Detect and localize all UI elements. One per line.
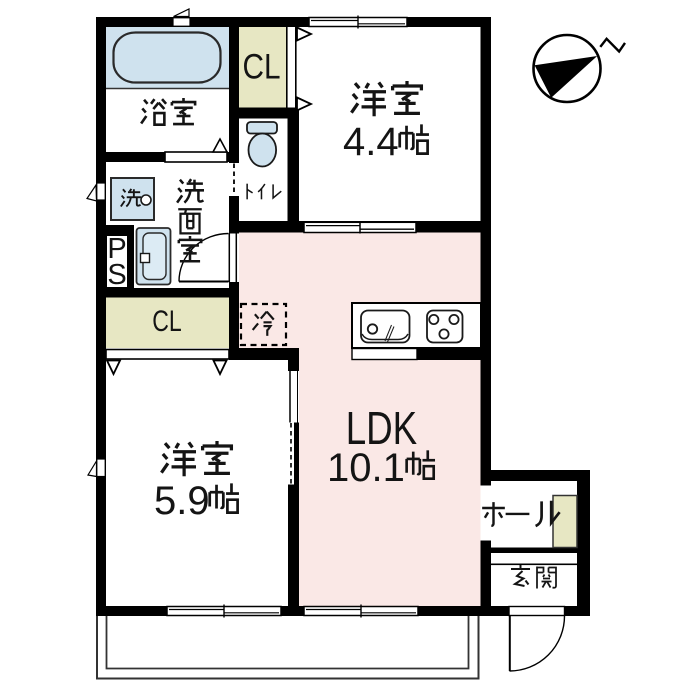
svg-text:4.4: 4.4 (343, 120, 399, 164)
svg-text:CL: CL (243, 48, 281, 87)
svg-text:CL: CL (152, 305, 182, 338)
svg-text:5.9: 5.9 (154, 479, 210, 523)
svg-text:S: S (107, 259, 126, 291)
svg-text:10.1: 10.1 (327, 446, 405, 490)
